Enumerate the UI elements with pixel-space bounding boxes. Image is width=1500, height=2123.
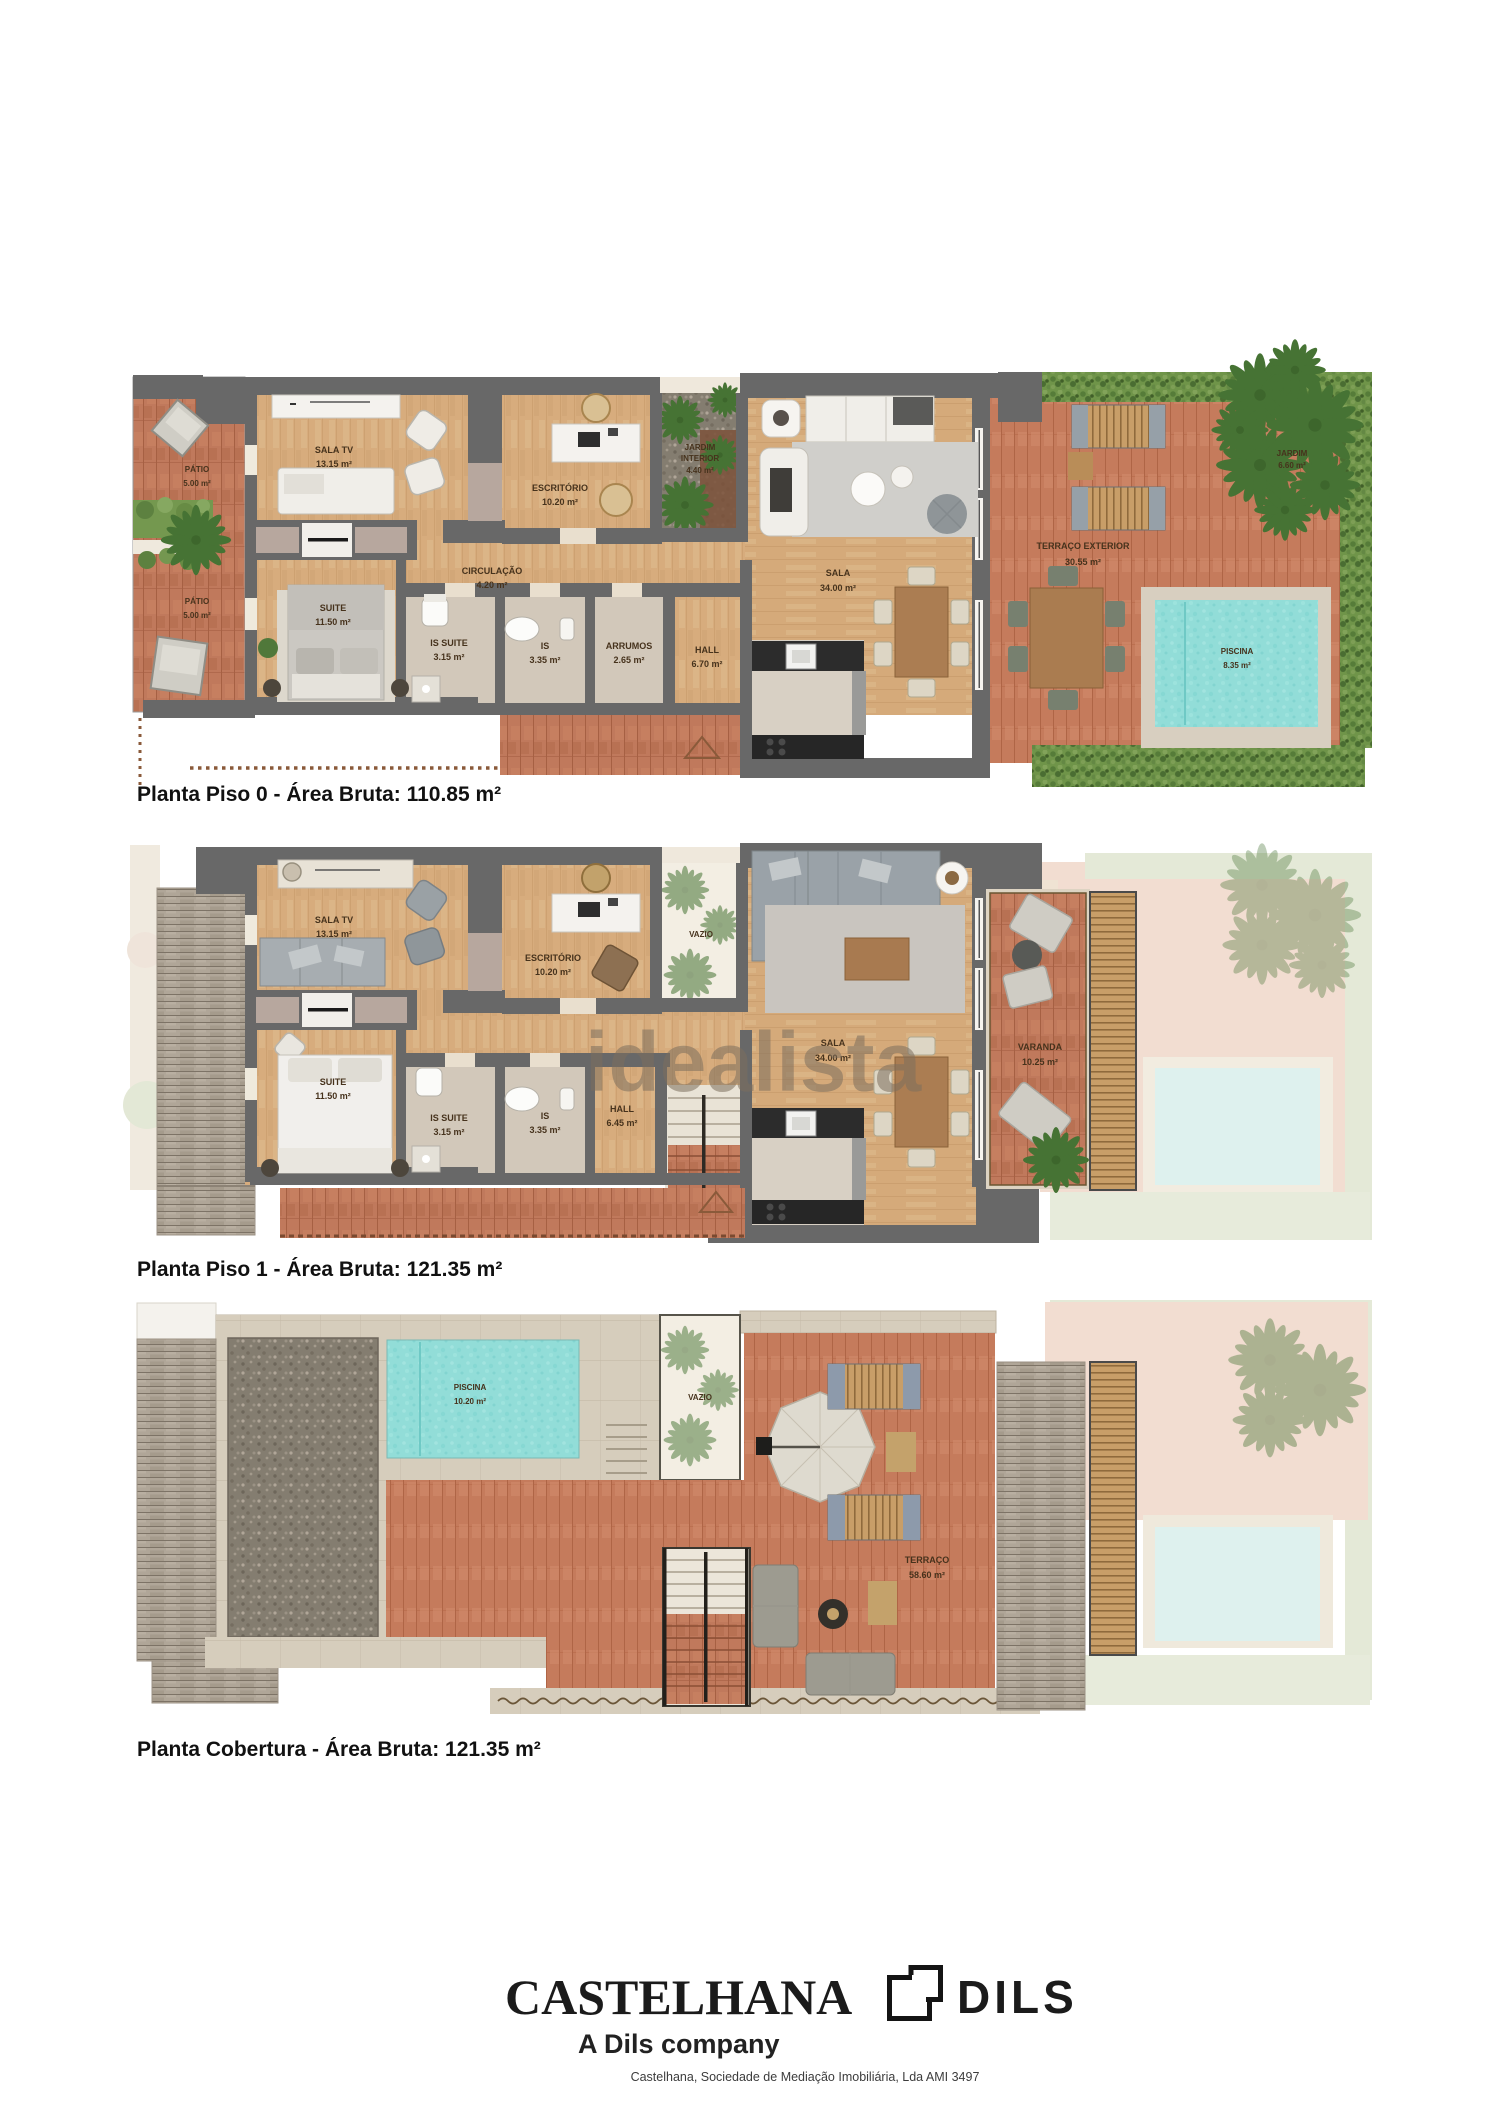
svg-text:5.00 m²: 5.00 m²	[183, 611, 211, 620]
svg-text:INTERIOR: INTERIOR	[681, 454, 719, 463]
svg-text:IS SUITE: IS SUITE	[430, 638, 468, 648]
svg-text:SALA: SALA	[826, 568, 851, 578]
svg-text:5.00 m²: 5.00 m²	[183, 479, 211, 488]
svg-text:3.35 m²: 3.35 m²	[529, 1125, 560, 1135]
svg-text:Planta Piso 1 - Área Bruta: 12: Planta Piso 1 - Área Bruta: 121.35 m²	[137, 1258, 502, 1281]
svg-text:11.50 m²: 11.50 m²	[315, 1091, 351, 1101]
svg-text:IS: IS	[541, 1111, 550, 1121]
svg-text:6.70 m²: 6.70 m²	[691, 659, 722, 669]
svg-text:JARDIM: JARDIM	[1277, 449, 1308, 458]
svg-text:SALA TV: SALA TV	[315, 445, 353, 455]
svg-text:30.55 m²: 30.55 m²	[1065, 557, 1101, 567]
svg-text:3.15 m²: 3.15 m²	[433, 1127, 464, 1137]
svg-text:PÁTIO: PÁTIO	[185, 597, 209, 606]
svg-text:SUITE: SUITE	[320, 1077, 347, 1087]
svg-text:TERRAÇO EXTERIOR: TERRAÇO EXTERIOR	[1036, 541, 1130, 551]
svg-text:6.45 m²: 6.45 m²	[606, 1118, 637, 1128]
svg-text:SUITE: SUITE	[320, 603, 347, 613]
svg-text:3.35 m²: 3.35 m²	[529, 655, 560, 665]
svg-text:CASTELHANA: CASTELHANA	[505, 1969, 852, 2025]
svg-text:8.35 m²: 8.35 m²	[1223, 661, 1251, 670]
svg-text:10.25 m²: 10.25 m²	[1022, 1057, 1058, 1067]
svg-text:4.40 m²: 4.40 m²	[686, 466, 714, 475]
svg-text:2.65 m²: 2.65 m²	[613, 655, 644, 665]
svg-text:DILS: DILS	[957, 1971, 1078, 2023]
svg-text:Castelhana, Sociedade de Media: Castelhana, Sociedade de Mediação Imobil…	[631, 2070, 980, 2084]
svg-text:CIRCULAÇÃO: CIRCULAÇÃO	[462, 566, 523, 576]
svg-text:58.60 m²: 58.60 m²	[909, 1570, 945, 1580]
svg-text:13.15 m²: 13.15 m²	[316, 929, 352, 939]
svg-text:34.00 m²: 34.00 m²	[820, 583, 856, 593]
svg-text:Planta Piso 0 - Área Bruta: 11: Planta Piso 0 - Área Bruta: 110.85 m²	[137, 783, 501, 806]
svg-text:ESCRITÓRIO: ESCRITÓRIO	[532, 482, 588, 493]
svg-text:IS SUITE: IS SUITE	[430, 1113, 468, 1123]
svg-text:HALL: HALL	[695, 645, 719, 655]
svg-text:A Dils company: A Dils company	[578, 2029, 780, 2059]
svg-text:3.15 m²: 3.15 m²	[433, 652, 464, 662]
svg-text:SALA TV: SALA TV	[315, 915, 353, 925]
svg-text:13.15 m²: 13.15 m²	[316, 459, 352, 469]
svg-text:11.50 m²: 11.50 m²	[315, 617, 351, 627]
svg-text:Planta Cobertura - Área Bruta:: Planta Cobertura - Área Bruta: 121.35 m²	[137, 1738, 541, 1761]
svg-text:IS: IS	[541, 641, 550, 651]
svg-text:ARRUMOS: ARRUMOS	[606, 641, 653, 651]
svg-text:VARANDA: VARANDA	[1018, 1042, 1063, 1052]
svg-text:10.20 m²: 10.20 m²	[542, 497, 578, 507]
svg-text:10.20 m²: 10.20 m²	[454, 1397, 486, 1406]
svg-text:PISCINA: PISCINA	[454, 1383, 487, 1392]
svg-text:VAZIO: VAZIO	[689, 930, 713, 939]
svg-text:10.20 m²: 10.20 m²	[535, 967, 571, 977]
svg-text:TERRAÇO: TERRAÇO	[905, 1555, 950, 1565]
svg-text:6.60 m²: 6.60 m²	[1278, 461, 1306, 470]
svg-text:VAZIO: VAZIO	[688, 1393, 712, 1402]
svg-text:ESCRITÓRIO: ESCRITÓRIO	[525, 952, 581, 963]
svg-text:PÁTIO: PÁTIO	[185, 465, 209, 474]
svg-text:4.20 m²: 4.20 m²	[476, 580, 507, 590]
svg-text:PISCINA: PISCINA	[1221, 647, 1254, 656]
svg-text:idealista: idealista	[585, 1015, 922, 1109]
svg-text:JARDIM: JARDIM	[685, 443, 716, 452]
